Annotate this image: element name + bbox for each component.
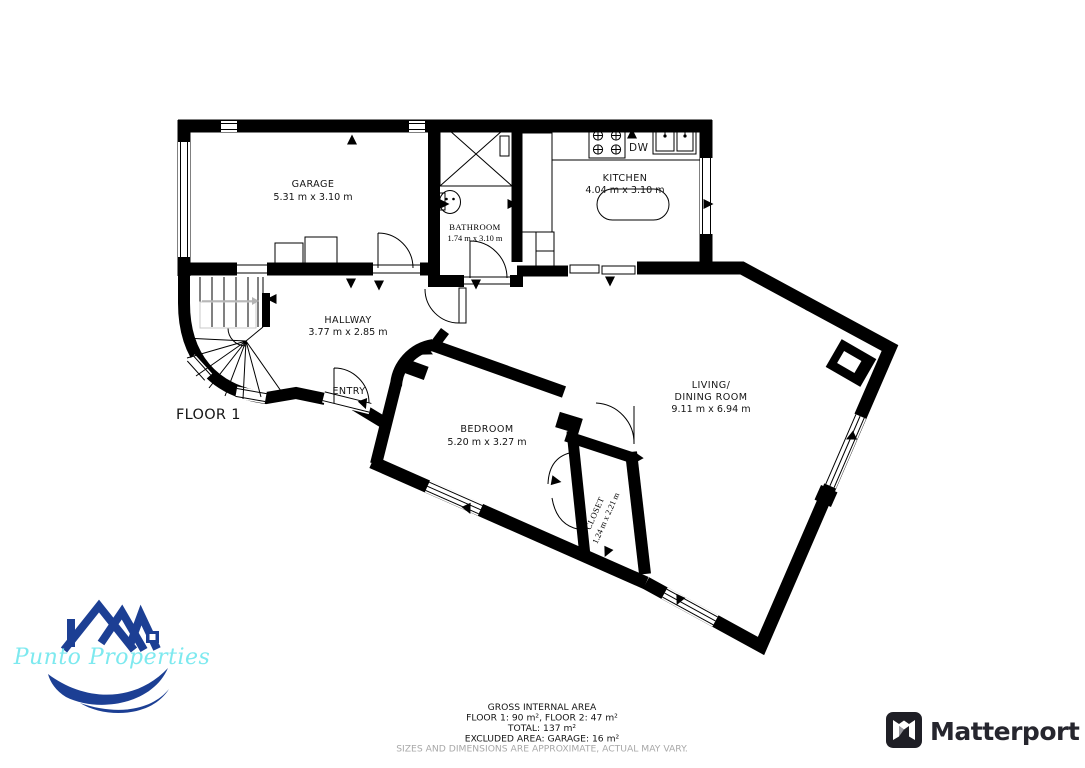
provider-name: Matterport — [930, 717, 1080, 746]
room-label-entry: ENTRY — [332, 386, 365, 397]
window-icon — [700, 158, 713, 234]
footer-disclaimer: SIZES AND DIMENSIONS ARE APPROXIMATE, AC… — [396, 744, 688, 755]
door-opening — [237, 262, 267, 276]
window-icon — [409, 121, 425, 132]
camera-marker-icon — [551, 475, 563, 487]
fireplace-icon — [826, 339, 877, 387]
floor-label: FLOOR 1 — [176, 407, 241, 423]
camera-marker-icon — [347, 135, 357, 145]
window-icon — [425, 480, 483, 515]
room-label-living-1: LIVING/ — [692, 380, 731, 391]
room-label-hallway: HALLWAY — [324, 315, 371, 326]
dishwasher-label: DW — [629, 142, 649, 154]
room-label-bedroom: BEDROOM — [460, 424, 513, 435]
camera-marker-icon — [374, 281, 384, 291]
room-dims-bedroom: 5.20 m x 3.27 m — [447, 437, 526, 448]
footer-title: GROSS INTERNAL AREA — [488, 702, 597, 713]
room-dims-living: 9.11 m x 6.94 m — [671, 404, 750, 415]
room-label-living-2: DINING ROOM — [675, 392, 748, 403]
agency-roof-icon — [64, 606, 159, 650]
room-dims-kitchen: 4.04 m x 3.10 m — [585, 185, 664, 196]
room-labels: GARAGE 5.31 m x 3.10 m BATHROOM 1.74 m x… — [176, 142, 751, 545]
window-icon — [824, 414, 866, 489]
room-label-kitchen: KITCHEN — [603, 173, 648, 184]
provider-logo: Matterport — [886, 712, 1080, 748]
door-opening — [568, 261, 637, 274]
window-icon — [221, 121, 237, 132]
room-dims-bathroom: 1.74 m x 3.10 m — [448, 234, 503, 243]
footer-area-summary: GROSS INTERNAL AREA FLOOR 1: 90 m², FLOO… — [396, 702, 688, 755]
camera-marker-icon — [346, 279, 356, 289]
room-dims-garage: 5.31 m x 3.10 m — [273, 192, 352, 203]
door-swing-bedroom — [596, 403, 634, 444]
agency-logo: Punto Properties — [13, 606, 211, 713]
room-label-garage: GARAGE — [292, 179, 335, 190]
fixtures — [275, 122, 876, 387]
room-label-bathroom: BATHROOM — [449, 222, 500, 232]
room-dims-hallway: 3.77 m x 2.85 m — [308, 327, 387, 338]
floor-plan-canvas: GARAGE 5.31 m x 3.10 m BATHROOM 1.74 m x… — [0, 0, 1085, 768]
footer-floor-areas: FLOOR 1: 90 m², FLOOR 2: 47 m² — [466, 713, 618, 724]
camera-marker-icon — [605, 277, 615, 287]
provider-logo-icon — [886, 712, 922, 748]
garage-door-window-icon — [178, 142, 190, 257]
door-leaf — [459, 288, 466, 323]
door-swing-hallway — [425, 289, 459, 323]
footer-total: TOTAL: 137 m² — [507, 723, 577, 734]
window-icon — [235, 386, 267, 403]
camera-markers — [267, 129, 858, 608]
door-opening — [464, 274, 510, 287]
window-icon — [661, 587, 718, 626]
door-swing-bathroom — [470, 241, 507, 278]
agency-name: Punto Properties — [13, 645, 211, 670]
floor-plan-page: GARAGE 5.31 m x 3.10 m BATHROOM 1.74 m x… — [0, 0, 1085, 768]
agency-wave-icon — [48, 668, 169, 713]
